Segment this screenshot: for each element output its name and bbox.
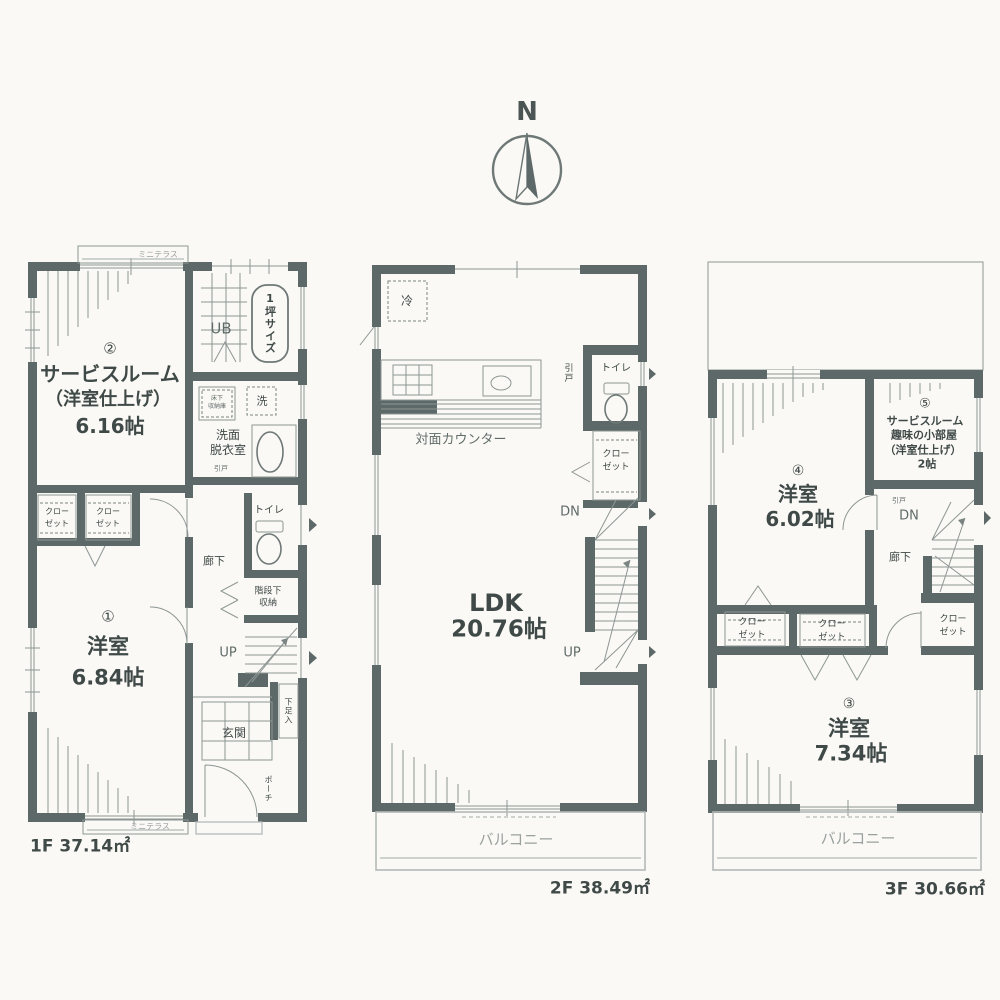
washer-label: 洗 [257, 396, 268, 407]
sliding-door-label-1f: 引戸 [214, 466, 228, 473]
counter-label: 対面カウンター [415, 434, 506, 447]
balcony-label-2f: バルコニー [479, 833, 554, 848]
closet-b-label-2: ゼット [818, 634, 845, 643]
floor3-area-label: 3F 30.66㎡ [885, 882, 985, 899]
room3-number: ③ [843, 697, 856, 711]
closet-b-label-1: クロー [818, 621, 845, 630]
sliding-door-label-2f: 引戸 [563, 363, 572, 383]
tsubo-size-label: 1坪サイズ [265, 292, 276, 354]
room1-area: 6.84帖 [72, 668, 145, 689]
room2-subname: （洋室仕上げ） [45, 391, 171, 409]
entrance-label: 玄関 [222, 727, 246, 739]
stairs-down-label-2f: DN [560, 506, 580, 519]
toilet-label-2f: トイレ [601, 364, 631, 374]
room5-name-1: サービスルーム [887, 416, 964, 427]
underfloor-storage-label-1: 床下 [211, 396, 223, 402]
balcony-label-3f: バルコニー [821, 832, 896, 847]
room4-name: 洋室 [778, 484, 818, 504]
hallway-label-3f: 廊下 [889, 552, 911, 563]
washroom-label-1: 洗面 [216, 429, 240, 441]
closet1-label-1: クロー [45, 508, 69, 516]
room5-name-2: 趣味の小部屋 [891, 430, 957, 441]
floor3-plan [708, 262, 991, 870]
ldk-name: LDK [469, 591, 523, 615]
stairs-down-label-3f: DN [899, 510, 919, 523]
floor2-area-label: 2F 38.49㎡ [550, 881, 650, 898]
shoe-storage-label: 下足入 [284, 698, 292, 725]
room2-name: サービスルーム [40, 364, 179, 384]
room3-name: 洋室 [828, 719, 870, 740]
unit-bath-label: UB [210, 322, 231, 337]
closet-label-2f-2: ゼット [602, 464, 629, 473]
floorplan-drawing [0, 0, 1000, 1000]
room3-area: 7.34帖 [815, 744, 888, 765]
room1-number: ① [101, 610, 114, 625]
understairs-label-1: 階段下 [254, 588, 281, 597]
closet2-label-1: クロー [96, 508, 120, 516]
hallway-label-1f: 廊下 [203, 556, 225, 567]
stairs-up-label-1f: UP [219, 647, 236, 660]
washroom-label-2: 脱衣室 [210, 444, 246, 456]
stairs-up-label-2f: UP [563, 647, 580, 660]
floorplan-page: N ミニテラス ② サービスルーム （洋室仕上げ） 6.16帖 UB 1坪サイズ… [0, 0, 1000, 1000]
floor1-area-label: 1F 37.14㎡ [30, 839, 130, 856]
room5-name-3: （洋室仕上げ） [885, 445, 962, 456]
fridge-label: 冷 [401, 295, 413, 307]
understairs-label-2: 収納 [259, 600, 277, 609]
closet-label-2f-1: クロー [602, 451, 629, 460]
room2-area: 6.16帖 [75, 416, 144, 436]
terrace-bottom-label: ミニテラス [130, 823, 170, 831]
room4-number: ④ [792, 464, 805, 478]
room5-area: 2帖 [918, 459, 937, 470]
closet2-label-2: ゼット [96, 520, 120, 528]
compass-rose [493, 133, 561, 204]
underfloor-storage-label-2: 収納庫 [208, 404, 226, 410]
closet-a-label-2: ゼット [738, 632, 765, 641]
closet-right-label-2: ゼット [939, 629, 966, 638]
sliding-door-label-3f: 引戸 [892, 498, 906, 505]
room5-number: ⑤ [919, 398, 931, 411]
room1-name: 洋室 [87, 637, 129, 658]
porch-label: ポーチ [264, 776, 272, 803]
toilet-label-1f: トイレ [254, 506, 284, 516]
ldk-area: 20.76帖 [451, 619, 547, 642]
floor2-plan [360, 261, 656, 870]
closet1-label-2: ゼット [45, 520, 69, 528]
closet-a-label-1: クロー [738, 619, 765, 628]
room2-number: ② [103, 342, 116, 357]
closet-right-label-1: クロー [939, 616, 966, 625]
room4-area: 6.02帖 [765, 509, 834, 529]
compass-n-label: N [516, 99, 538, 125]
terrace-top-label: ミニテラス [138, 251, 178, 259]
